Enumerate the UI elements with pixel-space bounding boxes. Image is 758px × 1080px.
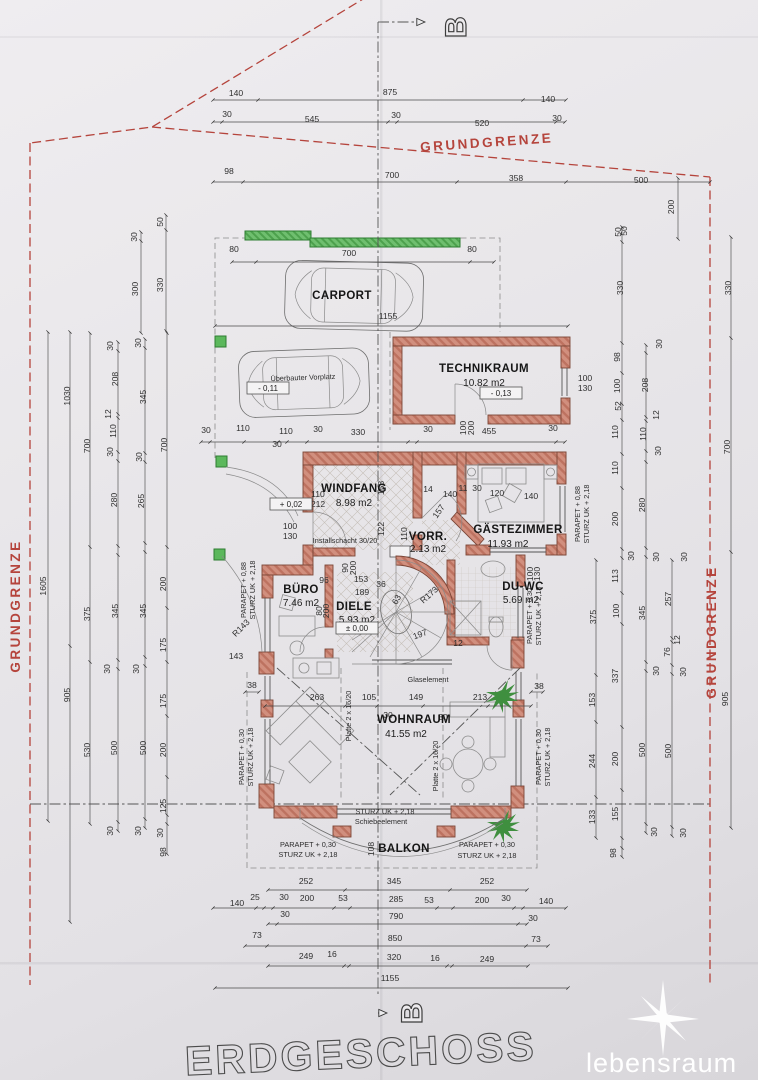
note-label: PARAPET + 0,30 bbox=[237, 729, 246, 785]
dim-label: 140 bbox=[524, 491, 539, 501]
dim-label: 200 bbox=[300, 893, 315, 903]
dim-label: 100 bbox=[283, 521, 298, 531]
room-name: DIELE bbox=[336, 601, 372, 613]
dim-label: 52 bbox=[613, 401, 623, 411]
dim-label: 500 bbox=[138, 741, 148, 756]
room-area: 7.46 m2 bbox=[283, 598, 320, 609]
dim-label: 500 bbox=[663, 744, 673, 759]
dim-label: 30 bbox=[279, 892, 289, 902]
dim-label: 500 bbox=[634, 175, 649, 185]
dim-label: 200 bbox=[158, 743, 168, 758]
room-name: VORR. bbox=[409, 531, 447, 543]
dim-label: 76 bbox=[662, 647, 672, 657]
dim-label: 140 bbox=[541, 94, 556, 104]
dim-label: 330 bbox=[155, 278, 165, 293]
dim-label: 98 bbox=[158, 847, 168, 857]
floor-plan-page: 1408751403054530520309870035850020050807… bbox=[0, 0, 758, 1080]
dim-label: 30 bbox=[548, 423, 558, 433]
dim-label: 208 bbox=[640, 378, 650, 393]
dim-label: 105 bbox=[362, 692, 377, 702]
dim-label: 700 bbox=[159, 438, 169, 453]
dim-label: 130 bbox=[283, 531, 298, 541]
note-label: Überbauter Vorplatz bbox=[270, 372, 336, 383]
dim-label: 155 bbox=[610, 807, 620, 822]
dim-label: 790 bbox=[389, 911, 404, 921]
dim-label: 80 bbox=[467, 244, 477, 254]
dim-label: 200 bbox=[466, 421, 476, 436]
dim-label: 108 bbox=[366, 842, 376, 857]
dim-label: 345 bbox=[138, 604, 148, 619]
note-label: Platte 2 x 16/20 bbox=[344, 691, 353, 742]
dim-label: 875 bbox=[383, 87, 398, 97]
dim-label: 110 bbox=[279, 426, 293, 436]
dim-label: 143 bbox=[229, 651, 244, 661]
dim-label: 30 bbox=[391, 110, 401, 120]
dim-label: 345 bbox=[110, 604, 120, 619]
dim-label: 38 bbox=[534, 681, 544, 691]
dim-label: 73 bbox=[252, 930, 262, 940]
dim-label: 153 bbox=[354, 574, 369, 584]
dim-label: 30 bbox=[105, 826, 115, 836]
dim-label: 375 bbox=[588, 610, 598, 625]
dim-label: 208 bbox=[110, 372, 120, 387]
note-label: PARAPET + 0,88 bbox=[239, 562, 248, 618]
boundary-label: GRUNDGRENZE bbox=[420, 130, 554, 154]
dim-label: 320 bbox=[387, 952, 402, 962]
note-label: STURZ UK + 2,18 bbox=[246, 727, 255, 786]
dashed-outlines bbox=[30, 238, 710, 868]
dim-label: 14 bbox=[423, 484, 433, 494]
dim-label: 30 bbox=[201, 425, 211, 435]
dim-label: 30 bbox=[501, 893, 511, 903]
dim-label: 133 bbox=[587, 810, 597, 825]
dim-label: 110 bbox=[610, 425, 620, 439]
note-label: PARAPET + 0,88 bbox=[573, 486, 582, 542]
hedge bbox=[245, 231, 460, 247]
note-label: STURZ UK + 2,18 bbox=[248, 560, 257, 619]
dim-label: 30 bbox=[222, 109, 232, 119]
dim-label: 50 bbox=[155, 217, 165, 227]
dim-label: 140 bbox=[443, 489, 458, 499]
note-label: Schiebeelement bbox=[355, 817, 407, 826]
dim-label: 30 bbox=[105, 341, 115, 351]
logo-star-icon bbox=[627, 980, 699, 1056]
dim-label: 113 bbox=[610, 569, 620, 583]
room-name: TECHNIKRAUM bbox=[439, 363, 529, 375]
room-name: GÄSTEZIMMER bbox=[473, 523, 563, 536]
dim-label: 249 bbox=[299, 951, 314, 961]
dim-label: 700 bbox=[342, 248, 357, 258]
dim-label: 200 bbox=[610, 512, 620, 527]
floor-plan-drawing: 1408751403054530520309870035850020050807… bbox=[0, 0, 758, 1080]
dim-label: 110 bbox=[610, 461, 620, 475]
note-label: STURZ UK + 2,18 bbox=[457, 851, 516, 860]
room-name: CARPORT bbox=[312, 290, 372, 302]
dim-label: 30 bbox=[423, 424, 433, 434]
level-value: - 0,11 bbox=[258, 384, 278, 393]
green-posts bbox=[214, 336, 227, 560]
dim-label: 358 bbox=[509, 173, 524, 183]
dim-label: 257 bbox=[663, 592, 673, 607]
dim-label: 905 bbox=[62, 688, 72, 703]
dim-label: 200 bbox=[158, 577, 168, 592]
dim-label: 520 bbox=[475, 118, 490, 128]
room-name: BALKON bbox=[378, 843, 430, 855]
dim-label: 265 bbox=[136, 494, 146, 509]
dim-label: 96 bbox=[319, 575, 329, 585]
dim-label: 189 bbox=[355, 587, 370, 597]
dim-label: 153 bbox=[587, 693, 597, 708]
dim-label: 200 bbox=[666, 200, 676, 215]
room-area: 8.98 m2 bbox=[336, 498, 373, 509]
entrance-path bbox=[222, 467, 298, 652]
dim-label: 30 bbox=[313, 424, 323, 434]
dim-label: 200 bbox=[475, 895, 490, 905]
dim-label: 249 bbox=[480, 954, 495, 964]
room-name: WOHNRAUM bbox=[377, 714, 451, 726]
room-area: 2.13 m2 bbox=[410, 544, 447, 555]
dim-label: 122 bbox=[376, 522, 386, 537]
dim-label: 50 bbox=[613, 227, 623, 237]
section-marker-bottom: B bbox=[396, 1002, 429, 1024]
dim-label: 300 bbox=[130, 282, 140, 297]
dim-label: 30 bbox=[134, 452, 144, 462]
logo-wordmark: lebensraum bbox=[586, 1048, 737, 1078]
dim-label: 455 bbox=[482, 426, 497, 436]
dim-label: 100 bbox=[612, 379, 622, 394]
dim-label: 30 bbox=[649, 827, 659, 837]
dim-label: 30 bbox=[654, 339, 664, 349]
note-label: Platte 2 x 16/20 bbox=[431, 741, 440, 792]
dim-label: 140 bbox=[230, 898, 245, 908]
dim-label: 30 bbox=[653, 446, 663, 456]
dim-label: 700 bbox=[82, 439, 92, 454]
note-label: PARAPET + 0,30 bbox=[280, 840, 336, 849]
dim-label: 375 bbox=[82, 607, 92, 622]
note-label: PARAPET + 0,30 bbox=[534, 729, 543, 785]
dim-label: 110 bbox=[638, 427, 648, 441]
note-label: Installschacht 30/20 bbox=[313, 536, 378, 545]
dim-label: 12 bbox=[453, 638, 463, 648]
dim-label: 213 bbox=[473, 692, 488, 702]
dim-label: 30 bbox=[280, 909, 290, 919]
dim-label: 53 bbox=[338, 893, 348, 903]
dim-label: 30 bbox=[272, 439, 282, 449]
dim-label: 30 bbox=[102, 664, 112, 674]
dim-label: 330 bbox=[351, 427, 366, 437]
dim-label: 30 bbox=[651, 666, 661, 676]
dim-label: 345 bbox=[387, 876, 402, 886]
dim-label: 30 bbox=[678, 828, 688, 838]
dim-label: 905 bbox=[720, 692, 730, 707]
dim-label: 100 bbox=[578, 373, 593, 383]
dim-label: 30 bbox=[133, 826, 143, 836]
dim-label: 157 bbox=[430, 502, 447, 520]
note-label: PARAPET + 0,30 bbox=[459, 840, 515, 849]
dim-label: 700 bbox=[385, 170, 400, 180]
dim-label: 130 bbox=[532, 567, 542, 582]
dim-label: 98 bbox=[224, 166, 234, 176]
dim-label: 125 bbox=[158, 799, 168, 814]
dim-label: 30 bbox=[679, 552, 689, 562]
boundary-label: GRUNDGRENZE bbox=[704, 565, 719, 698]
page-title: ERDGESCHOSS bbox=[184, 1023, 538, 1080]
dim-label: 140 bbox=[539, 896, 554, 906]
room-area: 5.69 m2 bbox=[503, 595, 540, 606]
dim-label: 280 bbox=[109, 493, 119, 508]
dim-label: 100 bbox=[611, 604, 621, 619]
dim-label: 330 bbox=[615, 281, 625, 296]
dim-label: 285 bbox=[389, 894, 404, 904]
dim-label: 110 bbox=[108, 424, 118, 438]
dim-label: 30 bbox=[129, 232, 139, 242]
dim-label: 252 bbox=[299, 876, 314, 886]
dim-label: 175 bbox=[158, 638, 168, 653]
dim-label: 545 bbox=[305, 114, 320, 124]
dim-label: 16 bbox=[327, 949, 337, 959]
note-label: Glaselement bbox=[408, 675, 449, 684]
section-letter-bottom: B bbox=[396, 1002, 429, 1024]
level-value: + 0,02 bbox=[280, 500, 303, 509]
level-value: - 0,13 bbox=[491, 389, 512, 398]
dim-label: 120 bbox=[490, 488, 505, 498]
dim-label: 263 bbox=[310, 692, 325, 702]
dim-label: 110 bbox=[399, 527, 409, 541]
dim-label: 200 bbox=[348, 561, 358, 576]
dim-label: 530 bbox=[82, 743, 92, 758]
dim-label: 80 bbox=[229, 244, 239, 254]
note-label: STURZ UK + 2,18 bbox=[582, 484, 591, 543]
dim-label: 500 bbox=[637, 743, 647, 758]
dim-label: 30 bbox=[105, 447, 115, 457]
room-name: BÜRO bbox=[283, 583, 318, 596]
dim-label: 850 bbox=[388, 933, 403, 943]
note-label: STURZ UK + 2,18 bbox=[278, 850, 337, 859]
dim-label: 244 bbox=[587, 754, 597, 769]
dim-label: 140 bbox=[229, 88, 244, 98]
dim-label: 30 bbox=[472, 483, 482, 493]
dim-label: 11 bbox=[459, 483, 468, 493]
section-letter-top: B bbox=[440, 16, 473, 38]
dim-label: 500 bbox=[109, 741, 119, 756]
room-area: 11.93 m2 bbox=[488, 539, 529, 550]
dim-label: 1605 bbox=[38, 576, 48, 595]
dim-label: 30 bbox=[528, 913, 538, 923]
section-marker-top: B bbox=[440, 16, 473, 38]
dim-label: 30 bbox=[678, 667, 688, 677]
dim-label: 98 bbox=[608, 848, 618, 858]
dim-label: 200 bbox=[321, 604, 331, 619]
dim-label: 30 bbox=[651, 552, 661, 562]
dim-label: 98 bbox=[612, 352, 622, 362]
dim-label: 175 bbox=[158, 694, 168, 709]
dim-label: 30 bbox=[552, 113, 562, 123]
level-value: ± 0,00 bbox=[346, 624, 369, 633]
dim-label: 30 bbox=[131, 664, 141, 674]
dim-label: 25 bbox=[250, 892, 260, 902]
room-area: 41.55 m2 bbox=[385, 729, 427, 740]
dim-label: 330 bbox=[723, 281, 733, 296]
dim-label: 12 bbox=[672, 635, 682, 645]
logo: lebensraum bbox=[586, 980, 737, 1078]
boundary-label: GRUNDGRENZE bbox=[8, 539, 23, 672]
dim-label: 12 bbox=[651, 410, 661, 420]
room-name: WINDFANG bbox=[321, 483, 387, 495]
dim-label: 38 bbox=[247, 680, 257, 690]
dim-label: 700 bbox=[722, 440, 732, 455]
dim-label: 280 bbox=[637, 498, 647, 513]
dim-label: 200 bbox=[610, 752, 620, 767]
dim-label: 1155 bbox=[381, 973, 400, 983]
dim-label: 252 bbox=[480, 876, 495, 886]
dim-label: 1155 bbox=[379, 311, 398, 321]
dim-label: 53 bbox=[424, 895, 434, 905]
dim-label: 16 bbox=[430, 953, 440, 963]
note-label: STURZ UK + 2,18 bbox=[543, 727, 552, 786]
dim-label: 30 bbox=[626, 551, 636, 561]
dim-label: 30 bbox=[155, 828, 165, 838]
note-label: STURZ UK + 2,18 bbox=[355, 807, 414, 816]
dim-label: 30 bbox=[133, 338, 143, 348]
dim-label: 345 bbox=[138, 390, 148, 405]
dim-label: 130 bbox=[578, 383, 593, 393]
dim-label: 1030 bbox=[62, 386, 72, 405]
dim-label: 73 bbox=[531, 934, 541, 944]
dim-label: 212 bbox=[311, 499, 326, 509]
dim-label: 345 bbox=[637, 606, 647, 621]
room-name: DU-WC bbox=[502, 581, 544, 593]
dim-label: 149 bbox=[409, 692, 424, 702]
dim-label: 12 bbox=[103, 409, 113, 419]
dim-label: 36 bbox=[376, 579, 386, 589]
dim-label: 337 bbox=[610, 669, 620, 684]
dim-label: 110 bbox=[236, 423, 250, 433]
